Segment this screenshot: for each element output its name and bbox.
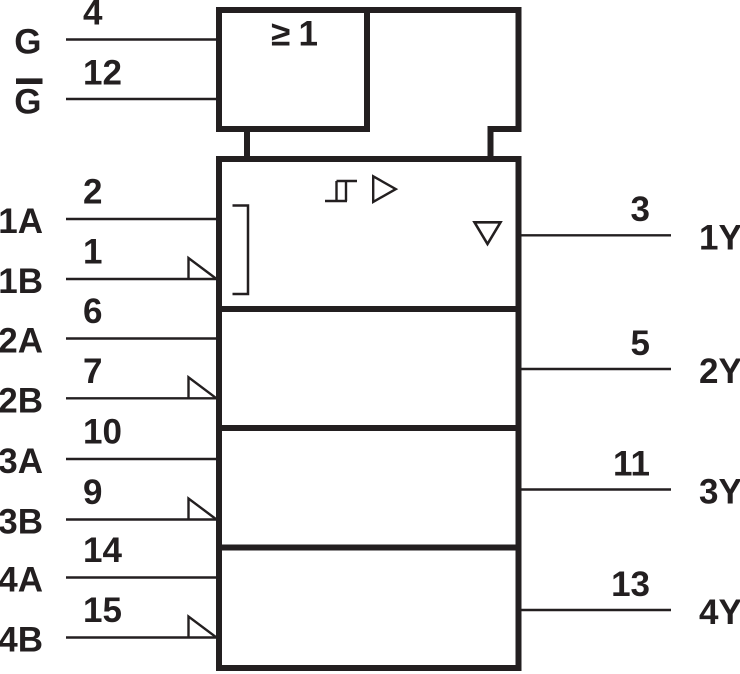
svg-text:4A: 4A (0, 561, 43, 600)
svg-text:2A: 2A (0, 322, 43, 361)
svg-text:4: 4 (83, 0, 103, 33)
svg-text:3Y: 3Y (699, 473, 740, 512)
svg-text:1: 1 (299, 15, 318, 54)
svg-text:1Y: 1Y (699, 218, 740, 257)
svg-text:2: 2 (83, 173, 102, 212)
svg-text:1B: 1B (0, 262, 43, 301)
svg-text:11: 11 (613, 445, 650, 484)
svg-text:2Y: 2Y (699, 352, 740, 391)
svg-text:4B: 4B (0, 621, 43, 660)
svg-text:G: G (14, 83, 41, 122)
svg-text:14: 14 (83, 531, 122, 570)
svg-text:3B: 3B (0, 503, 43, 542)
svg-text:1A: 1A (0, 202, 43, 241)
svg-text:12: 12 (83, 53, 122, 92)
svg-text:5: 5 (631, 324, 650, 363)
svg-text:G: G (14, 23, 41, 62)
svg-text:1: 1 (83, 233, 102, 272)
svg-text:13: 13 (611, 565, 650, 604)
svg-text:4Y: 4Y (699, 593, 740, 632)
svg-text:7: 7 (83, 352, 102, 391)
svg-text:3: 3 (631, 190, 650, 229)
svg-text:3A: 3A (0, 442, 43, 481)
svg-text:9: 9 (83, 473, 102, 512)
svg-text:≥: ≥ (271, 15, 290, 54)
svg-text:2B: 2B (0, 381, 43, 420)
svg-text:10: 10 (83, 413, 122, 452)
svg-text:15: 15 (83, 591, 122, 630)
svg-text:6: 6 (83, 292, 102, 331)
